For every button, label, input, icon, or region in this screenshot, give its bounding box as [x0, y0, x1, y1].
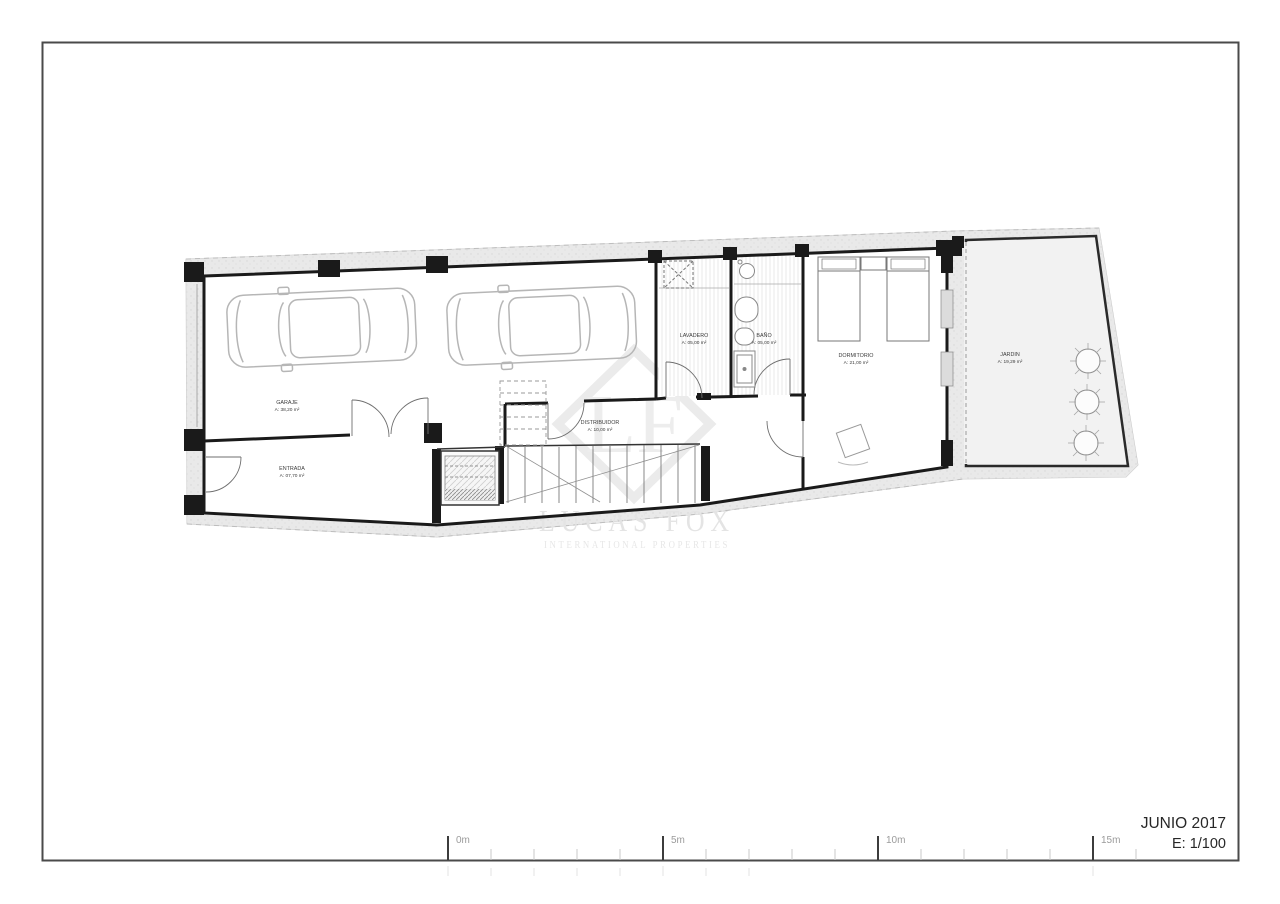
tree-icon [1070, 343, 1106, 379]
svg-text:ENTRADA: ENTRADA [279, 466, 305, 472]
scale-ghost-ticks [448, 866, 1093, 876]
svg-text:A: 38,20 m²: A: 38,20 m² [275, 407, 300, 413]
tree-icon [1069, 384, 1105, 420]
scale-label-0m: 0m [456, 835, 470, 846]
svg-text:BAÑO: BAÑO [756, 332, 771, 339]
garden [952, 236, 1128, 466]
drawing-date: JUNIO 2017 [1141, 815, 1226, 832]
bed-icon [818, 257, 860, 341]
svg-text:A: 05,00 m²: A: 05,00 m² [752, 340, 777, 346]
svg-text:LAVADERO: LAVADERO [680, 333, 709, 339]
window-icon [941, 290, 953, 328]
svg-text:A: 19,29 m²: A: 19,29 m² [998, 359, 1023, 365]
floor-plan-canvas: LF LUCAS FOX INTERNATIONAL PROPERTIES [0, 0, 1280, 904]
drawing-sheet: LF LUCAS FOX INTERNATIONAL PROPERTIES [0, 0, 1280, 904]
svg-text:GARAJE: GARAJE [276, 400, 298, 406]
tap-icon [738, 260, 742, 264]
watermark-tagline: INTERNATIONAL PROPERTIES [544, 540, 730, 551]
drawing-scale: E: 1/100 [1172, 836, 1226, 852]
patio-planter [441, 451, 499, 505]
svg-text:A: 21,00 m²: A: 21,00 m² [844, 360, 869, 366]
scale-label-5m: 5m [671, 835, 685, 846]
scale-label-10m: 10m [886, 835, 905, 846]
svg-text:A: 10,00 m²: A: 10,00 m² [588, 427, 613, 433]
scale-label-15m: 15m [1101, 835, 1120, 846]
bed-icon [887, 257, 929, 341]
svg-text:A: 07,70 m²: A: 07,70 m² [280, 473, 305, 479]
svg-text:JARDIN: JARDIN [1000, 352, 1020, 358]
window-icon [941, 352, 953, 386]
svg-text:DORMITORIO: DORMITORIO [839, 353, 874, 359]
nightstand-icon [861, 257, 886, 270]
svg-text:A: 05,00 m²: A: 05,00 m² [682, 340, 707, 346]
tree-icon [1068, 425, 1104, 461]
toilet-icon [735, 297, 758, 322]
watermark-brand: LUCAS FOX [539, 503, 735, 538]
svg-text:DISTRIBUIDOR: DISTRIBUIDOR [581, 420, 620, 426]
sink-icon [740, 264, 755, 279]
shower-tray-icon [734, 351, 755, 387]
